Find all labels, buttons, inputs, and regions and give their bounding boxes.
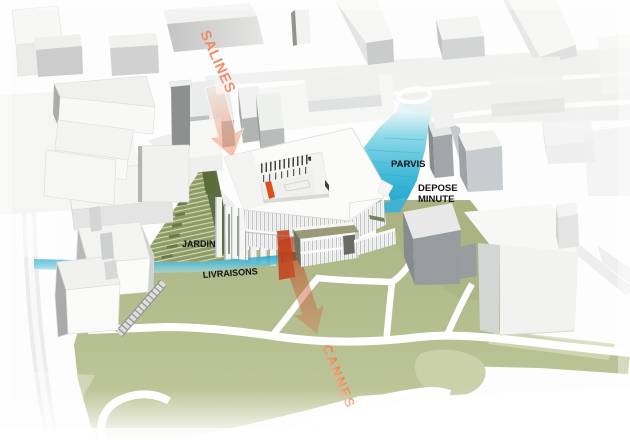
svg-text:JARDIN: JARDIN xyxy=(182,239,216,249)
svg-text:DEPOSE: DEPOSE xyxy=(418,183,458,194)
svg-text:PARVIS: PARVIS xyxy=(391,159,426,170)
svg-text:MINUTE: MINUTE xyxy=(418,194,454,205)
